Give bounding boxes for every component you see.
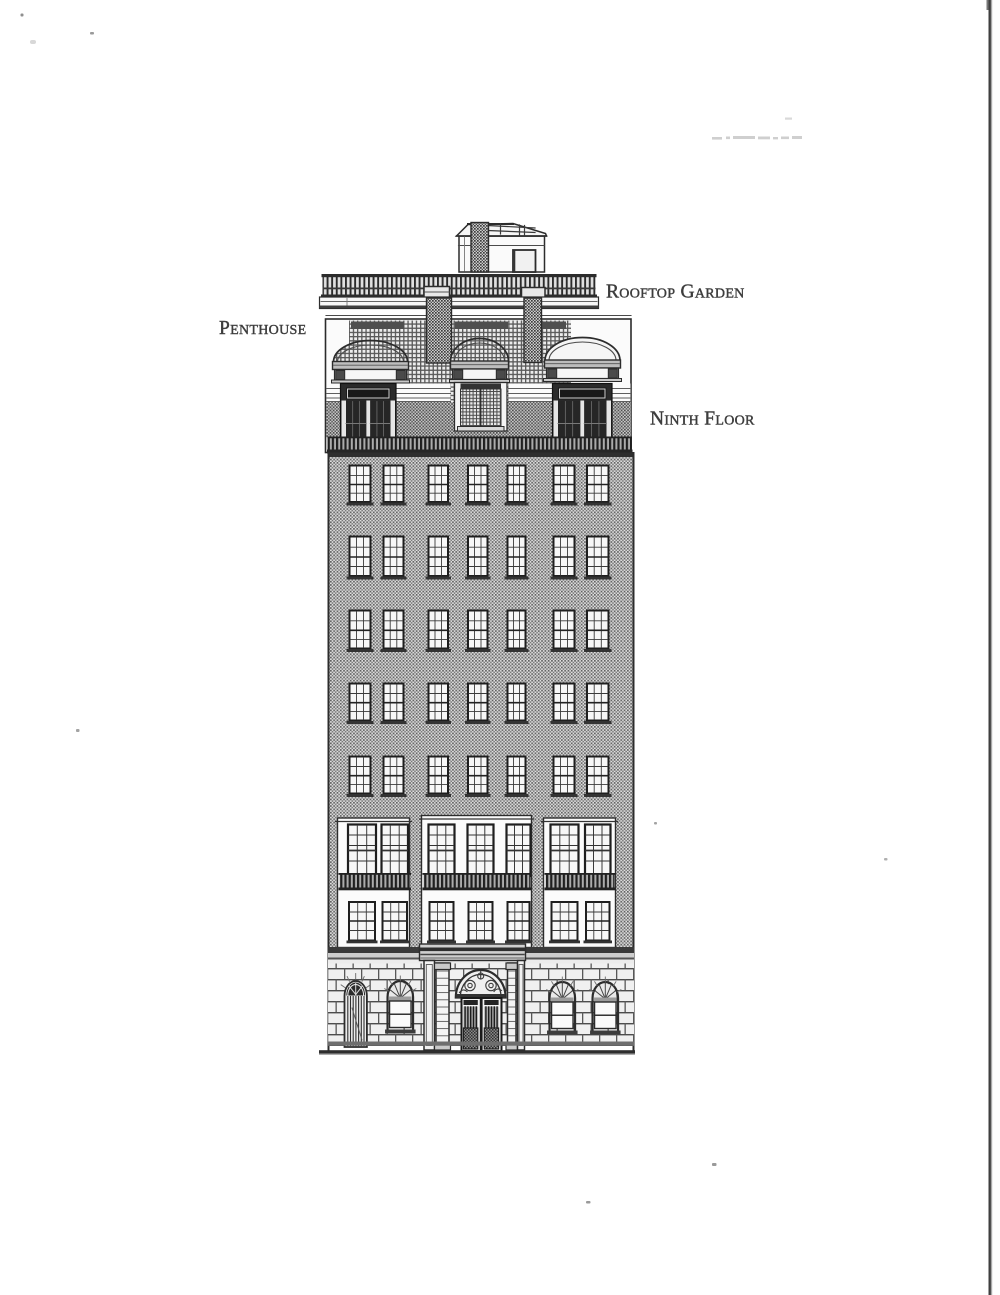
svg-text:Rooftop Garden: Rooftop Garden [606, 282, 745, 303]
svg-text:Ninth Floor: Ninth Floor [650, 409, 755, 430]
svg-text:Penthouse: Penthouse [219, 318, 306, 339]
